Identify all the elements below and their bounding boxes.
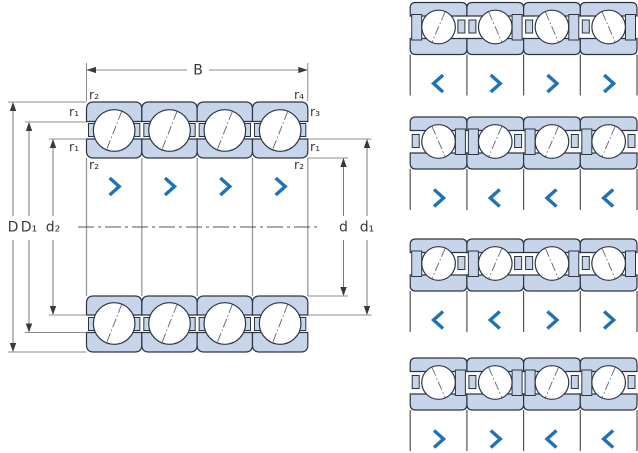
bearing-unit: [524, 117, 581, 169]
chevron-left-icon: [604, 190, 614, 207]
label-r1-left-lower: r₁: [69, 139, 79, 154]
chevron-right-icon: [110, 178, 120, 195]
arrangement-diagram-2: [410, 117, 637, 210]
chevron-right-icon: [604, 75, 614, 92]
bearing-unit: [524, 3, 581, 55]
chevron-right-icon: [220, 178, 230, 195]
dimension-B: B: [87, 63, 308, 102]
chevron-left-icon: [547, 190, 557, 207]
arrangement-diagrams: [410, 3, 637, 452]
dim-arrow-left: [87, 67, 97, 73]
arrangement-diagram-3: [410, 239, 637, 332]
chevron-left-icon: [434, 75, 444, 92]
bearing-unit: [467, 358, 524, 410]
bearing-unit: [580, 358, 637, 410]
bearing-unit: [410, 117, 467, 169]
chevron-left-icon: [490, 312, 500, 329]
dim-arrow-right: [298, 67, 308, 73]
chevron-right-icon: [276, 178, 286, 195]
bearing-unit: [467, 3, 524, 55]
chevron-right-icon: [604, 312, 614, 329]
bearing-unit: [467, 239, 524, 291]
label-D1: D₁: [21, 220, 37, 236]
bearing-figure: B D D₁ d₂: [0, 0, 638, 453]
bearing-unit: [410, 3, 467, 55]
label-r2-top-left: r₂: [89, 87, 99, 102]
chevron-right-icon: [491, 75, 501, 92]
label-r2-bottom-left: r₂: [89, 157, 99, 172]
label-B: B: [193, 63, 203, 79]
chevron-left-icon: [547, 431, 557, 448]
chevron-right-icon: [547, 75, 557, 92]
arrangement-diagram-4: [410, 358, 637, 451]
bearing-unit: [410, 239, 467, 291]
label-r3-right-upper: r₃: [310, 104, 320, 119]
bearing-unit: [467, 117, 524, 169]
label-d1: d₁: [360, 220, 375, 236]
chevron-right-icon: [434, 190, 444, 207]
bearing-unit: [524, 358, 581, 410]
chevron-right-icon: [165, 178, 175, 195]
chevron-left-icon: [434, 312, 444, 329]
label-r1-right-lower: r₁: [310, 139, 320, 154]
bearing-unit: [524, 239, 581, 291]
label-r4-top-right: r₄: [294, 87, 304, 102]
bearing-unit: [580, 239, 637, 291]
bearing-unit: [410, 358, 467, 410]
chevron-right-icon: [547, 312, 557, 329]
chevron-left-icon: [604, 431, 614, 448]
chevron-right-icon: [434, 431, 444, 448]
label-d2: d₂: [46, 220, 61, 236]
bearing-unit: [580, 117, 637, 169]
bearing-unit: [580, 3, 637, 55]
arrangement-diagram-1: [410, 3, 637, 96]
bearing-cross-section-drawing: B D D₁ d₂: [0, 0, 638, 453]
label-d: d: [339, 220, 348, 236]
dimension-d: d: [308, 158, 348, 296]
label-r1-left-upper: r₁: [69, 104, 79, 119]
chevron-right-icon: [491, 431, 501, 448]
label-r2-bottom-right: r₂: [294, 157, 304, 172]
chevron-left-icon: [490, 190, 500, 207]
label-D: D: [8, 220, 19, 236]
